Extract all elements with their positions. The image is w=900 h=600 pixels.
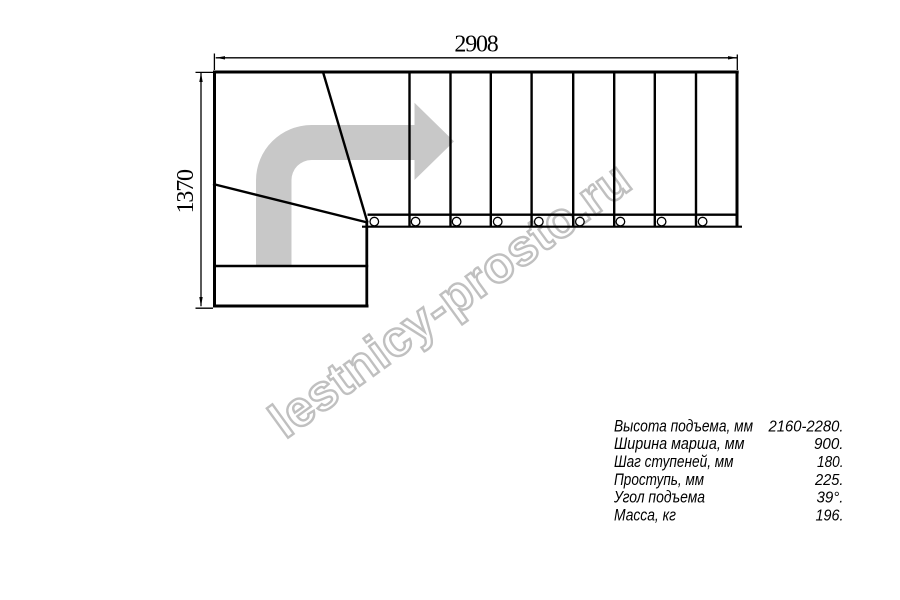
svg-text:2160-2280.: 2160-2280. [768,418,844,435]
svg-text:Масса, кг: Масса, кг [614,505,676,524]
svg-text:Проступь, мм: Проступь, мм [614,470,704,489]
svg-text:1370: 1370 [173,169,199,213]
svg-text:Шаг ступеней, мм: Шаг ступеней, мм [614,452,734,471]
svg-text:225.: 225. [814,472,843,489]
svg-text:Ширина марша, мм: Ширина марша, мм [614,434,745,453]
svg-text:2908: 2908 [454,32,498,58]
svg-text:Угол подъема: Угол подъема [613,488,705,507]
svg-text:Высота подъема, мм: Высота подъема, мм [614,416,753,435]
svg-text:196.: 196. [816,507,844,524]
svg-text:39°.: 39°. [817,490,844,507]
svg-text:180.: 180. [817,454,844,471]
svg-text:900.: 900. [814,436,844,453]
